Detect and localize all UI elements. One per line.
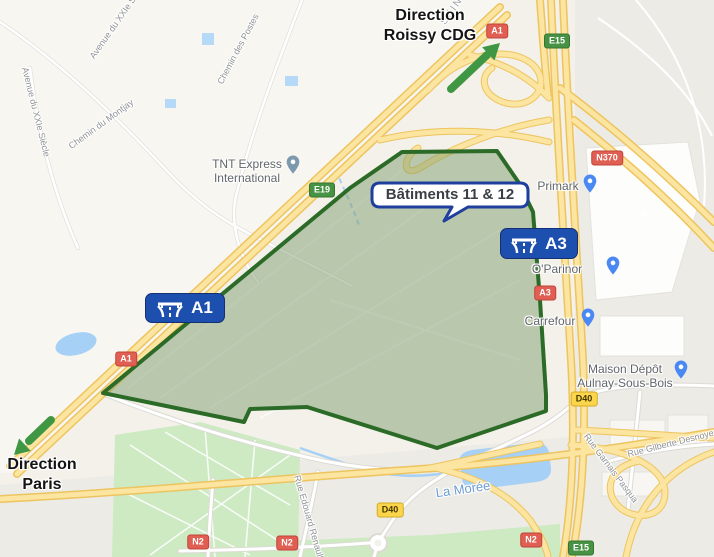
poi-pin-icon[interactable] <box>582 309 595 327</box>
route-shield-a3: A3 <box>534 286 556 301</box>
poi-pin-icon[interactable] <box>287 156 300 174</box>
motorway-badge-label: A1 <box>191 298 213 318</box>
route-shield-e15-bottom: E15 <box>568 541 594 556</box>
motorway-icon <box>157 299 183 317</box>
map-canvas[interactable]: A1 E15 E19 N370 A1 A3 D40 D40 N2 N2 N2 E… <box>0 0 714 557</box>
route-shield-d40-south: D40 <box>377 503 404 518</box>
poi-pin-icon[interactable] <box>584 175 597 193</box>
route-shield-e15-top: E15 <box>544 34 570 49</box>
motorway-badge-a1: A1 <box>145 293 225 323</box>
poi-label-primark[interactable]: Primark <box>537 180 578 194</box>
motorway-icon <box>511 235 537 253</box>
motorway-badge-label: A3 <box>545 234 567 254</box>
poi-pin-icon[interactable] <box>607 257 620 275</box>
poi-label-carrefour[interactable]: Carrefour <box>525 315 576 329</box>
poi-label-tnt[interactable]: TNT Express International <box>197 158 297 186</box>
route-shield-e19: E19 <box>309 183 335 198</box>
poi-label-parinor[interactable]: O'Parinor <box>532 263 582 277</box>
callout-batiments-label: Bâtiments 11 & 12 <box>372 183 528 207</box>
route-shield-n370: N370 <box>591 151 623 166</box>
direction-label-paris: Direction Paris <box>0 455 84 495</box>
motorway-badge-a3: A3 <box>500 228 578 259</box>
route-shield-d40-east: D40 <box>571 392 598 407</box>
poi-pin-icon[interactable] <box>675 361 688 379</box>
direction-paris-line1: Direction <box>0 455 84 475</box>
direction-label-roissy: Direction Roissy CDG <box>350 6 510 46</box>
route-shield-n2-right: N2 <box>520 533 542 548</box>
poi-label-maison-depot[interactable]: Maison Dépôt Aulnay-Sous-Bois <box>569 363 681 391</box>
route-shield-a1-mid: A1 <box>115 352 137 367</box>
route-shield-n2-mid: N2 <box>276 536 298 551</box>
direction-paris-line2: Paris <box>0 475 84 495</box>
direction-roissy-line2: Roissy CDG <box>350 26 510 46</box>
direction-roissy-line1: Direction <box>350 6 510 26</box>
base-map <box>0 0 714 557</box>
route-shield-n2-left: N2 <box>187 535 209 550</box>
